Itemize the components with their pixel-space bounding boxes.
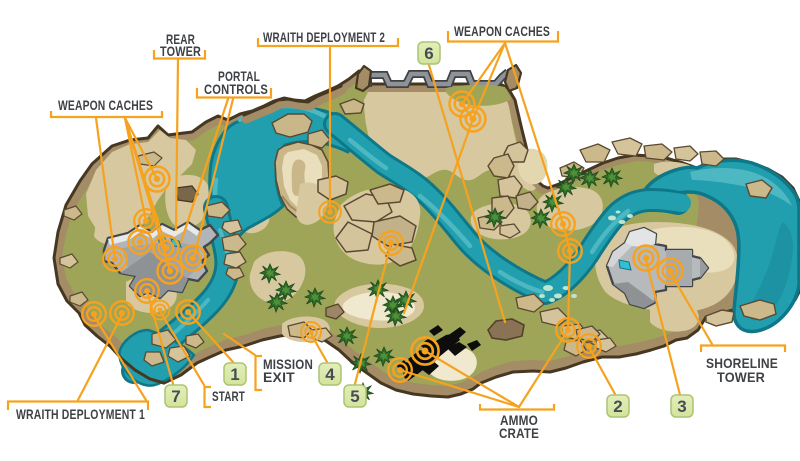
- svg-text:WRAITH DEPLOYMENT 2: WRAITH DEPLOYMENT 2: [263, 29, 385, 45]
- svg-text:START: START: [212, 388, 245, 404]
- svg-text:1: 1: [230, 365, 239, 384]
- svg-text:5: 5: [350, 387, 359, 406]
- svg-text:CRATE: CRATE: [499, 425, 539, 441]
- svg-text:WEAPON CACHES: WEAPON CACHES: [58, 97, 153, 113]
- svg-text:WRAITH DEPLOYMENT 1: WRAITH DEPLOYMENT 1: [16, 406, 145, 422]
- svg-text:4: 4: [325, 365, 335, 384]
- svg-text:7: 7: [171, 387, 180, 406]
- svg-text:2: 2: [613, 397, 622, 416]
- svg-text:CONTROLS: CONTROLS: [204, 81, 268, 97]
- svg-text:TOWER: TOWER: [160, 43, 201, 59]
- svg-text:3: 3: [677, 397, 686, 416]
- svg-text:WEAPON CACHES: WEAPON CACHES: [454, 23, 550, 39]
- svg-text:TOWER: TOWER: [717, 369, 765, 385]
- svg-text:EXIT: EXIT: [263, 369, 295, 385]
- svg-text:6: 6: [424, 44, 433, 63]
